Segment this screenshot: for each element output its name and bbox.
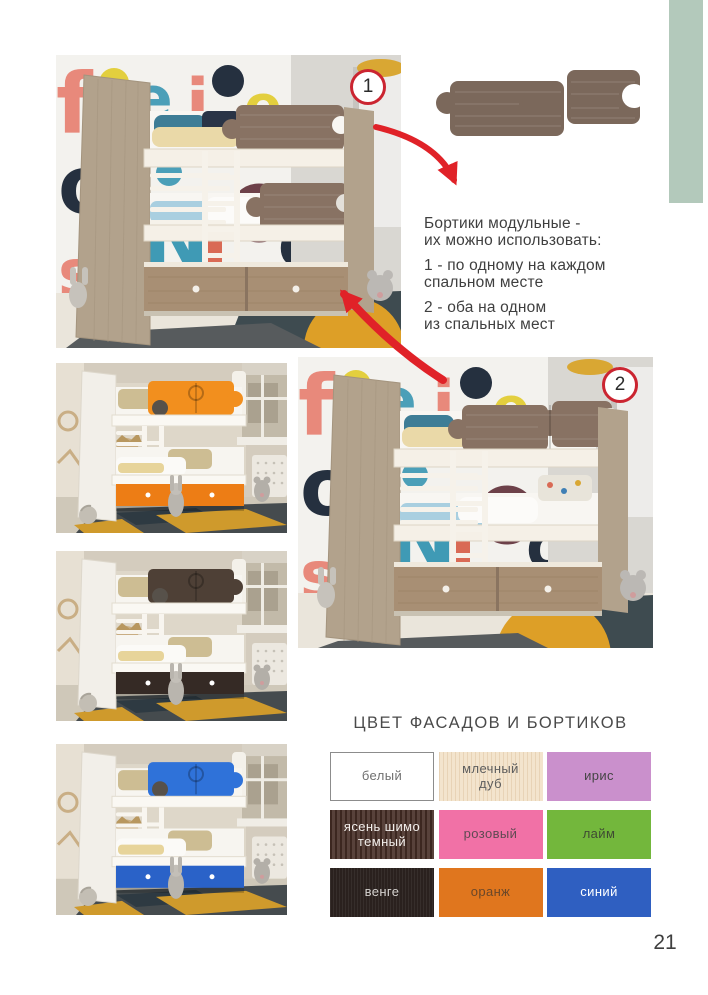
badge-option-2: 2 — [602, 367, 638, 403]
note-option-2: 2 - оба на одномиз спальных мест — [424, 300, 664, 333]
palette-swatch: ясень шимо темный — [330, 810, 434, 859]
photo-variant-blue — [56, 744, 287, 915]
palette-swatch-label: белый — [362, 769, 402, 784]
palette-swatch-label: оранж — [471, 885, 511, 900]
palette-grid: белыймлечный дубирисясень шимо темныйроз… — [330, 752, 651, 917]
palette-swatch: белый — [330, 752, 434, 801]
catalog-page: f e i e o N s q — [0, 0, 708, 995]
palette-swatch: млечный дуб — [439, 752, 543, 801]
badge-number: 2 — [615, 374, 626, 396]
top-bunk-puzzle-rail — [222, 105, 350, 151]
badge-number: 1 — [363, 76, 374, 98]
palette-swatch: лайм — [547, 810, 651, 859]
note-intro: Бортики модульные -их можно использовать… — [424, 216, 664, 249]
palette-swatch-label: млечный дуб — [462, 762, 519, 791]
photo-variant-wenge — [56, 551, 287, 721]
palette-swatch-label: розовый — [464, 827, 518, 842]
photo-bed-one-rail-per-bunk: f e i e o N s q — [56, 55, 401, 348]
bottom-bunk-puzzle-rail — [246, 183, 354, 231]
palette-swatch-label: венге — [365, 885, 400, 900]
modular-rails-note: Бортики модульные -их можно использовать… — [424, 216, 664, 342]
palette-swatch-label: синий — [580, 885, 617, 900]
puzzle-rail-product-image — [433, 64, 640, 140]
note-option-1: 1 - по одному на каждомспальном месте — [424, 258, 664, 291]
badge-option-1: 1 — [350, 69, 386, 105]
palette-swatch-label: ясень шимо темный — [344, 820, 420, 849]
top-bunk-double-puzzle-rail — [448, 401, 619, 451]
accent-color-bar — [669, 0, 703, 203]
palette-swatch: венге — [330, 868, 434, 917]
palette-title: ЦВЕТ ФАСАДОВ И БОРТИКОВ — [330, 714, 651, 733]
palette-swatch-label: ирис — [584, 769, 614, 784]
palette-swatch: оранж — [439, 868, 543, 917]
palette-swatch: розовый — [439, 810, 543, 859]
photo-variant-orange — [56, 363, 287, 533]
palette-swatch: синий — [547, 868, 651, 917]
palette-swatch-label: лайм — [583, 827, 616, 842]
photo-bed-two-rails-top-bunk: f e i e o N s q — [298, 357, 653, 648]
page-number: 21 — [645, 931, 685, 955]
palette-swatch: ирис — [547, 752, 651, 801]
